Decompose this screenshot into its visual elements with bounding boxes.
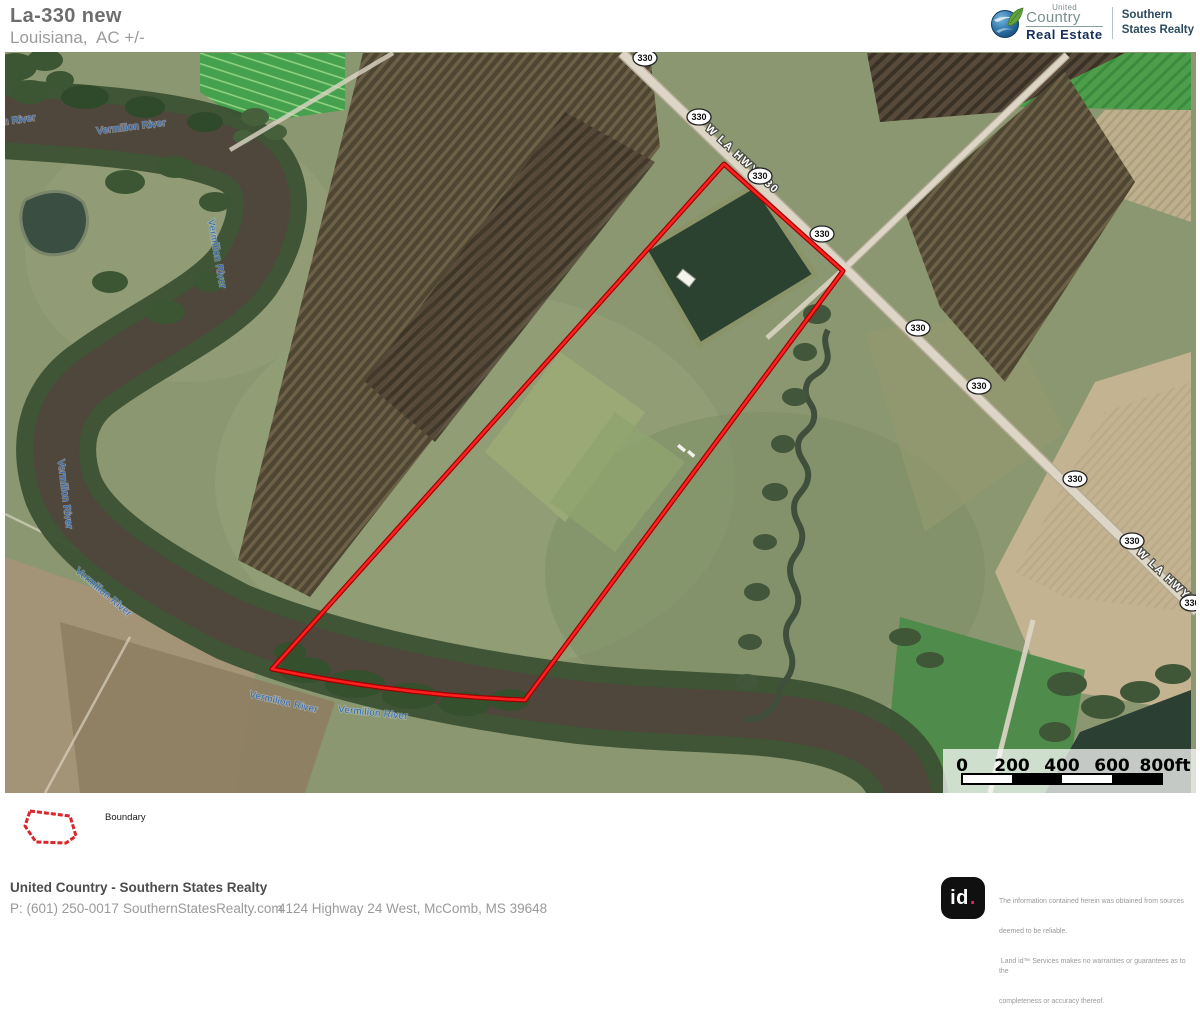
disclaimer-line-1: The information contained herein was obt… — [999, 897, 1197, 907]
scale-bar: 0 200 400 600 800ft — [943, 749, 1196, 793]
map-legend: Boundary — [22, 803, 84, 848]
footer-website: SouthernStatesRealty.com — [123, 901, 283, 916]
footer-address: 4124 Highway 24 West, McComb, MS 39648 — [278, 901, 547, 916]
footer-company: United Country - Southern States Realty — [10, 880, 267, 895]
disclaimer: The information contained herein was obt… — [999, 877, 1197, 1017]
route-shield-330: 330 — [752, 171, 767, 181]
route-shield-330: 330 — [637, 53, 652, 63]
route-shield-330: 330 — [971, 381, 986, 391]
aerial-map: Vermilion River Vermilion River Vermilio… — [5, 52, 1196, 793]
globe-leaf-icon — [990, 5, 1024, 41]
landid-logo-text: id — [950, 887, 969, 910]
united-country-logo: United Country Real Estate — [990, 4, 1103, 41]
landid-logo: id. — [941, 877, 985, 919]
legend-boundary-label: Boundary — [105, 812, 146, 823]
disclaimer-line-2: deemed to be reliable. — [999, 927, 1197, 937]
footer-phone: P: (601) 250-0017 — [10, 901, 119, 916]
route-shield-330: 330 — [1124, 536, 1139, 546]
route-shield-330: 330 — [1067, 474, 1082, 484]
landid-logo-dot: . — [970, 887, 976, 910]
page-title: La-330 new — [10, 5, 122, 28]
division-line1: Southern — [1122, 8, 1194, 23]
brand-country: Country — [1026, 10, 1103, 25]
route-shield-330: 330 — [691, 112, 706, 122]
disclaimer-line-4: completeness or accuracy thereof. — [999, 997, 1197, 1007]
map-viewport: Vermilion River Vermilion River Vermilio… — [5, 52, 1196, 793]
route-shield-330: 330 — [910, 323, 925, 333]
disclaimer-line-3: Land id™ Services makes no warranties or… — [999, 957, 1197, 977]
boundary-swatch-icon — [22, 803, 84, 848]
division-line2: States Realty — [1122, 23, 1194, 38]
route-shield-330: 330 — [1184, 598, 1196, 608]
pond-upper-left — [21, 191, 88, 254]
brand-divider — [1112, 7, 1113, 39]
brand-logo: United Country Real Estate Southern Stat… — [990, 4, 1194, 41]
route-shield-330: 330 — [814, 229, 829, 239]
page-subtitle: Louisiana, AC +/- — [10, 28, 145, 48]
brand-real-estate: Real Estate — [1026, 28, 1103, 41]
brand-division: Southern States Realty — [1122, 8, 1194, 38]
